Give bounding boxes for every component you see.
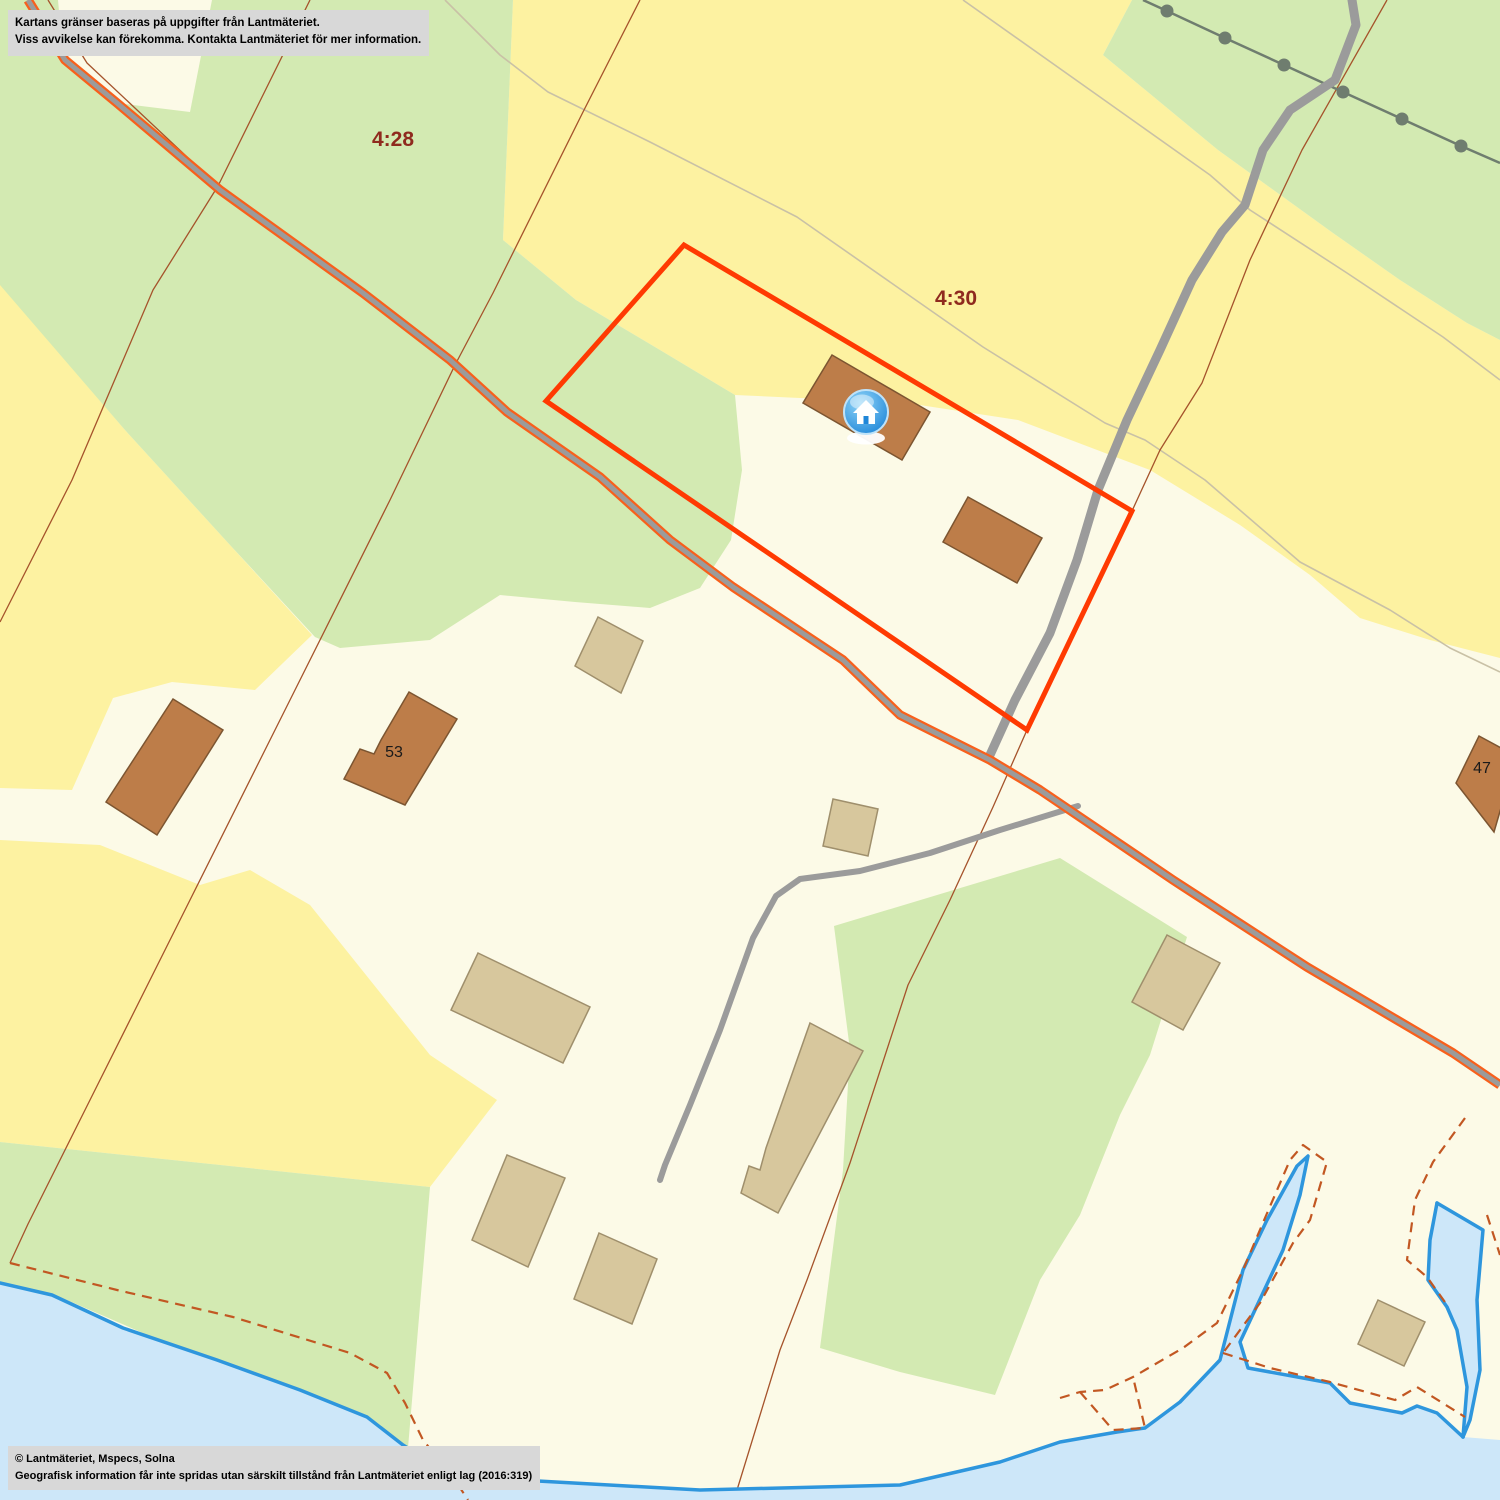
building-outbuilding-harbor xyxy=(1358,1300,1425,1366)
house-number-label-53: 53 xyxy=(385,744,403,761)
building-outbuilding-2 xyxy=(451,953,590,1063)
disclaimer-line-2: Viss avvikelse kan förekomma. Kontakta L… xyxy=(15,32,421,49)
building-outbuilding-3 xyxy=(472,1155,565,1267)
powerline-pole-4 xyxy=(1337,86,1350,99)
powerline-pole-5 xyxy=(1396,113,1409,126)
powerline-pole-1 xyxy=(1161,5,1174,18)
building-residential-2 xyxy=(943,497,1042,583)
building-residential-west xyxy=(106,699,223,835)
powerline-pole-2 xyxy=(1219,32,1232,45)
parcel-label-4-28: 4:28 xyxy=(372,128,414,151)
copyright-line-1: © Lantmäteriet, Mspecs, Solna xyxy=(15,1451,532,1468)
dashed-boundary-notch xyxy=(1080,1377,1145,1430)
powerline-pole-6 xyxy=(1455,140,1468,153)
house-number-label-47: 47 xyxy=(1473,760,1491,777)
building-outbuilding-1 xyxy=(575,617,643,693)
property-marker-icon[interactable] xyxy=(844,390,888,445)
house-icon-door xyxy=(864,416,869,424)
map-disclaimer: Kartans gränser baseras på uppgifter frå… xyxy=(8,10,429,56)
map-stage: 4:284:305347 Kartans gränser baseras på … xyxy=(0,0,1500,1500)
building-residential-47 xyxy=(1456,736,1500,832)
disclaimer-line-1: Kartans gränser baseras på uppgifter frå… xyxy=(15,15,421,32)
region-yellow-west-lower xyxy=(0,840,497,1187)
parcel-label-4-30: 4:30 xyxy=(935,287,977,310)
building-outbuilding-4 xyxy=(574,1233,657,1324)
map-copyright: © Lantmäteriet, Mspecs, Solna Geografisk… xyxy=(8,1446,540,1490)
dashed-boundary-right-edge xyxy=(1487,1215,1500,1255)
powerline-pole-3 xyxy=(1278,59,1291,72)
copyright-line-2: Geografisk information får inte spridas … xyxy=(15,1468,532,1485)
building-outbuilding-7 xyxy=(823,799,878,856)
map-canvas[interactable]: 4:284:305347 xyxy=(0,0,1500,1500)
region-green-southeast xyxy=(820,858,1187,1395)
